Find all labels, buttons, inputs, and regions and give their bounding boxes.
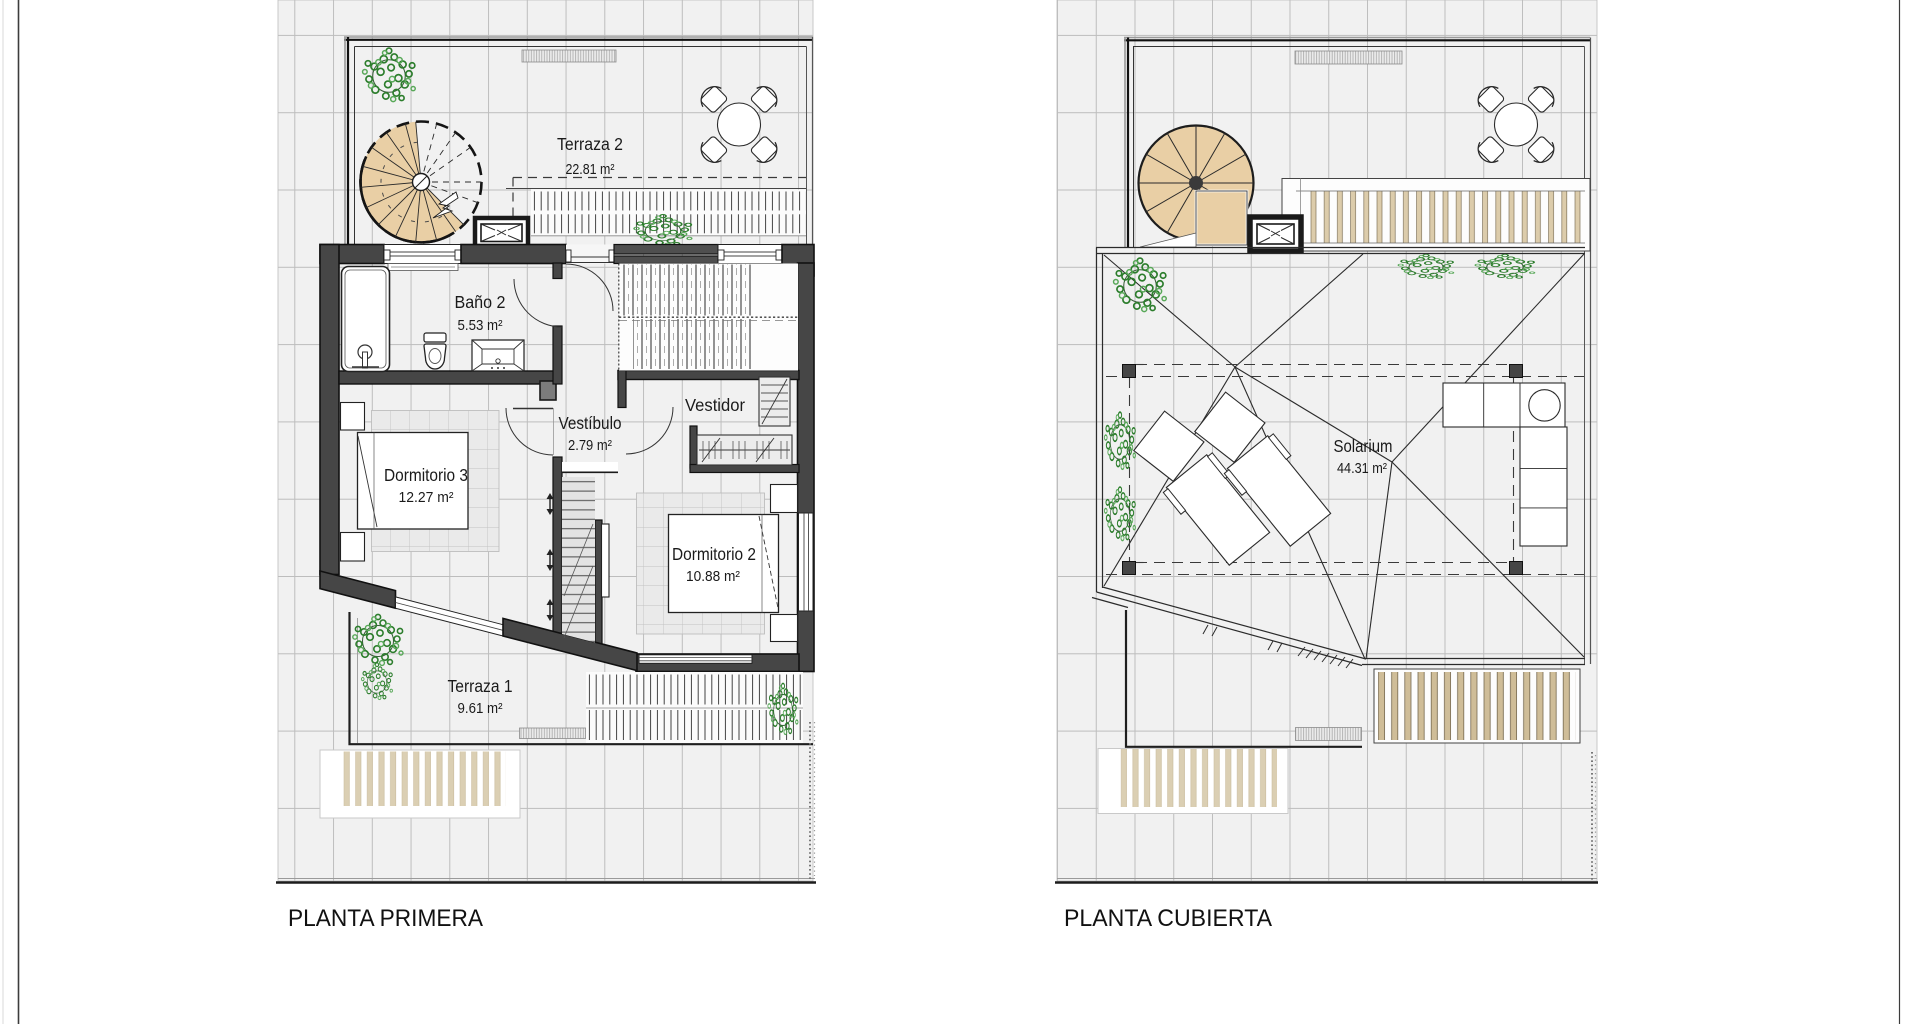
svg-text:2.79 m²: 2.79 m² [568,438,612,454]
svg-text:Vestíbulo: Vestíbulo [559,413,622,433]
svg-text:Terraza 1: Terraza 1 [448,676,513,696]
svg-text:12.27 m²: 12.27 m² [399,490,454,506]
svg-text:44.31 m²: 44.31 m² [1337,461,1387,477]
svg-text:Vestidor: Vestidor [685,395,745,415]
svg-text:Baño 2: Baño 2 [455,292,506,312]
svg-text:Dormitorio 3: Dormitorio 3 [384,465,468,485]
svg-text:Solarium: Solarium [1334,436,1393,456]
svg-text:10.88 m²: 10.88 m² [686,569,740,585]
svg-text:PLANTA CUBIERTA: PLANTA CUBIERTA [1064,905,1273,932]
svg-text:PLANTA PRIMERA: PLANTA PRIMERA [288,905,484,932]
svg-text:9.61 m²: 9.61 m² [458,701,503,717]
svg-text:Terraza 2: Terraza 2 [557,134,623,154]
svg-text:5.53 m²: 5.53 m² [458,318,503,334]
svg-text:22.81 m²: 22.81 m² [566,162,615,178]
svg-text:Dormitorio 2: Dormitorio 2 [672,544,756,564]
